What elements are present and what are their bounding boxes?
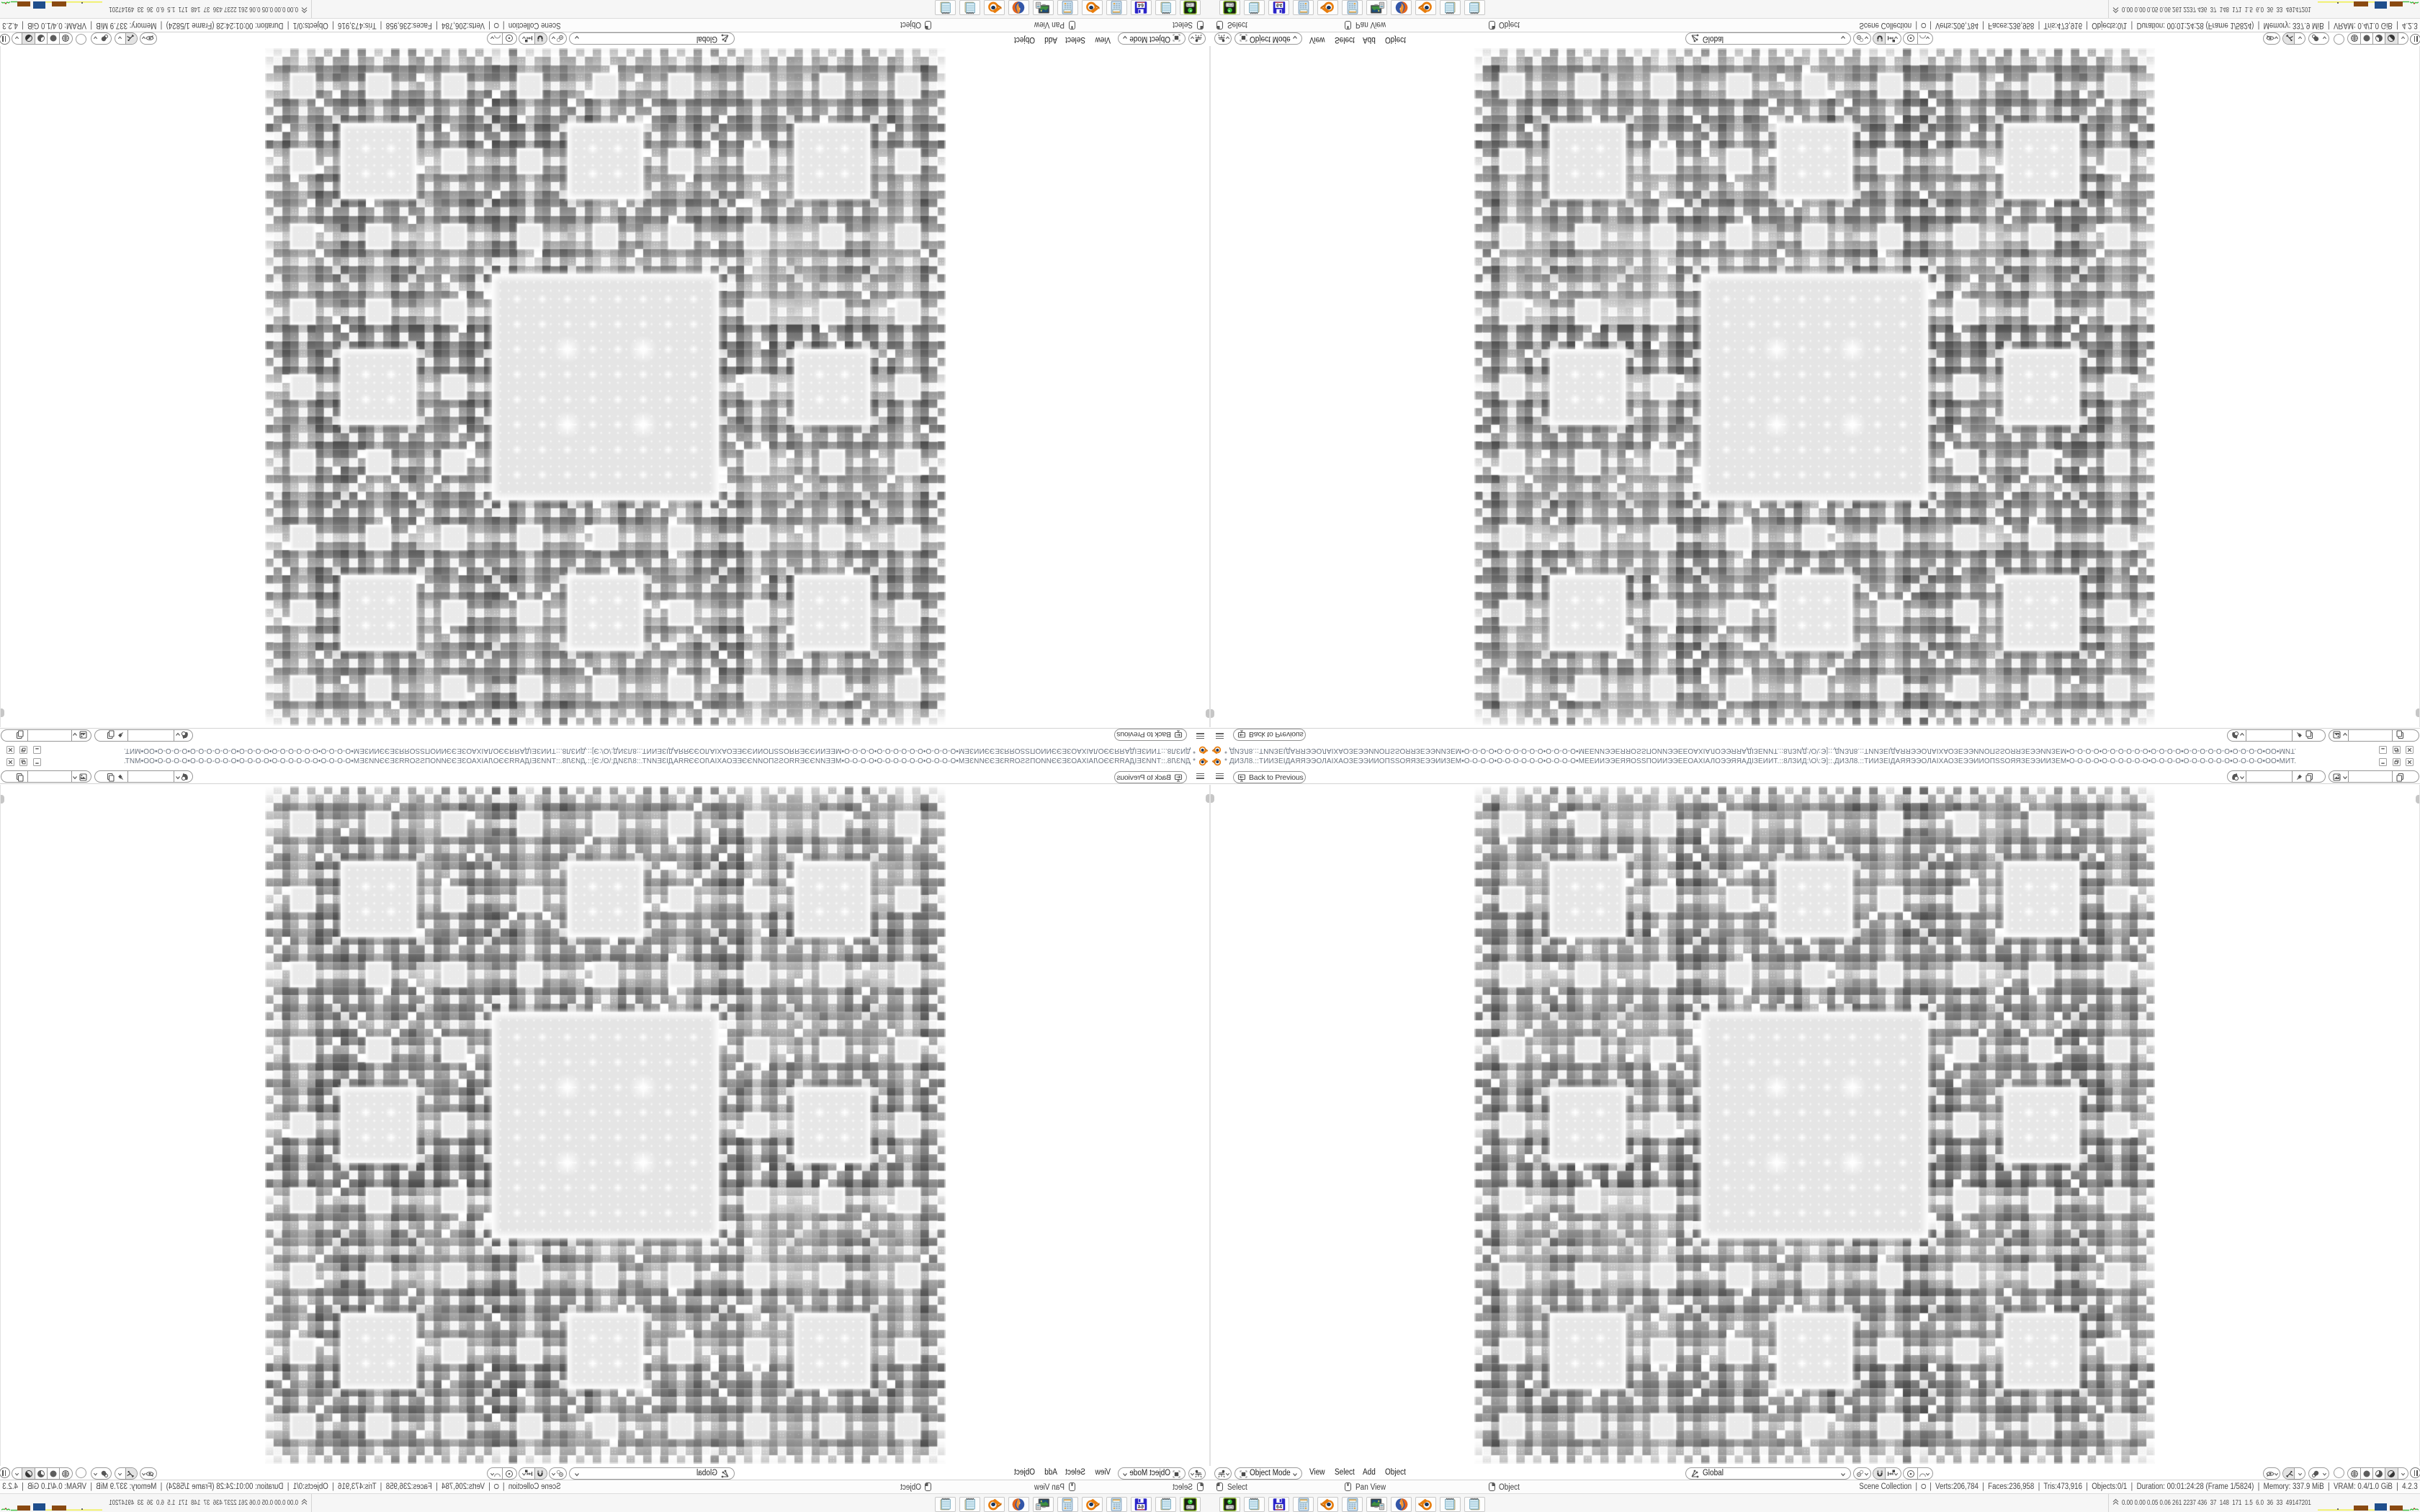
svg-text:64: 64 bbox=[1138, 1, 1144, 7]
svg-text:64: 64 bbox=[1276, 1505, 1282, 1511]
svg-text:64: 64 bbox=[1138, 1505, 1144, 1511]
svg-text:64: 64 bbox=[1276, 1, 1282, 7]
